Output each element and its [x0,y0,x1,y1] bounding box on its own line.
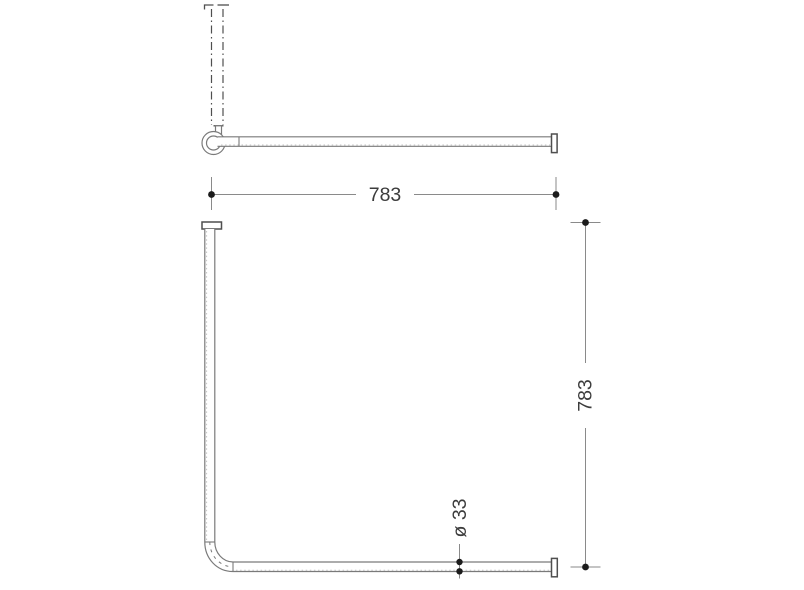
width-dimension-label: 783 [369,184,402,206]
depth-dimension: 783 [571,219,601,570]
ceiling-mount-cap-left [205,5,214,10]
dimension-dot-right [553,191,560,198]
dimension-dot-top [582,219,589,226]
left-rail-tube [205,229,215,542]
tube-body [205,229,215,542]
depth-dimension-label: 783 [575,379,597,412]
dimension-dot-bottom [582,564,589,571]
front-view: 783 [202,5,559,210]
wall-flange-front [552,134,558,153]
plan-view: 783 ø 33 [202,219,601,578]
technical-drawing-canvas: 783 [0,0,804,590]
bottom-rail-tube [233,562,552,572]
corner-elbow-plan [205,542,233,572]
elbow-inner-arc [215,542,233,562]
tube-body [218,137,553,146]
wall-flange-top [202,222,222,229]
ceiling-support-dashed-lines [205,5,230,125]
width-dimension: 783 [208,177,559,210]
elbow-outer-arc [205,542,233,572]
rail-tube-front [218,137,553,147]
diameter-label: ø 33 [449,498,471,537]
dimension-dot-left [208,191,215,198]
wall-flange-right [552,558,558,576]
curtain-rail-drawing: 783 [0,0,804,590]
diameter-dot-bottom [456,568,462,574]
diameter-dot-top [456,559,462,565]
